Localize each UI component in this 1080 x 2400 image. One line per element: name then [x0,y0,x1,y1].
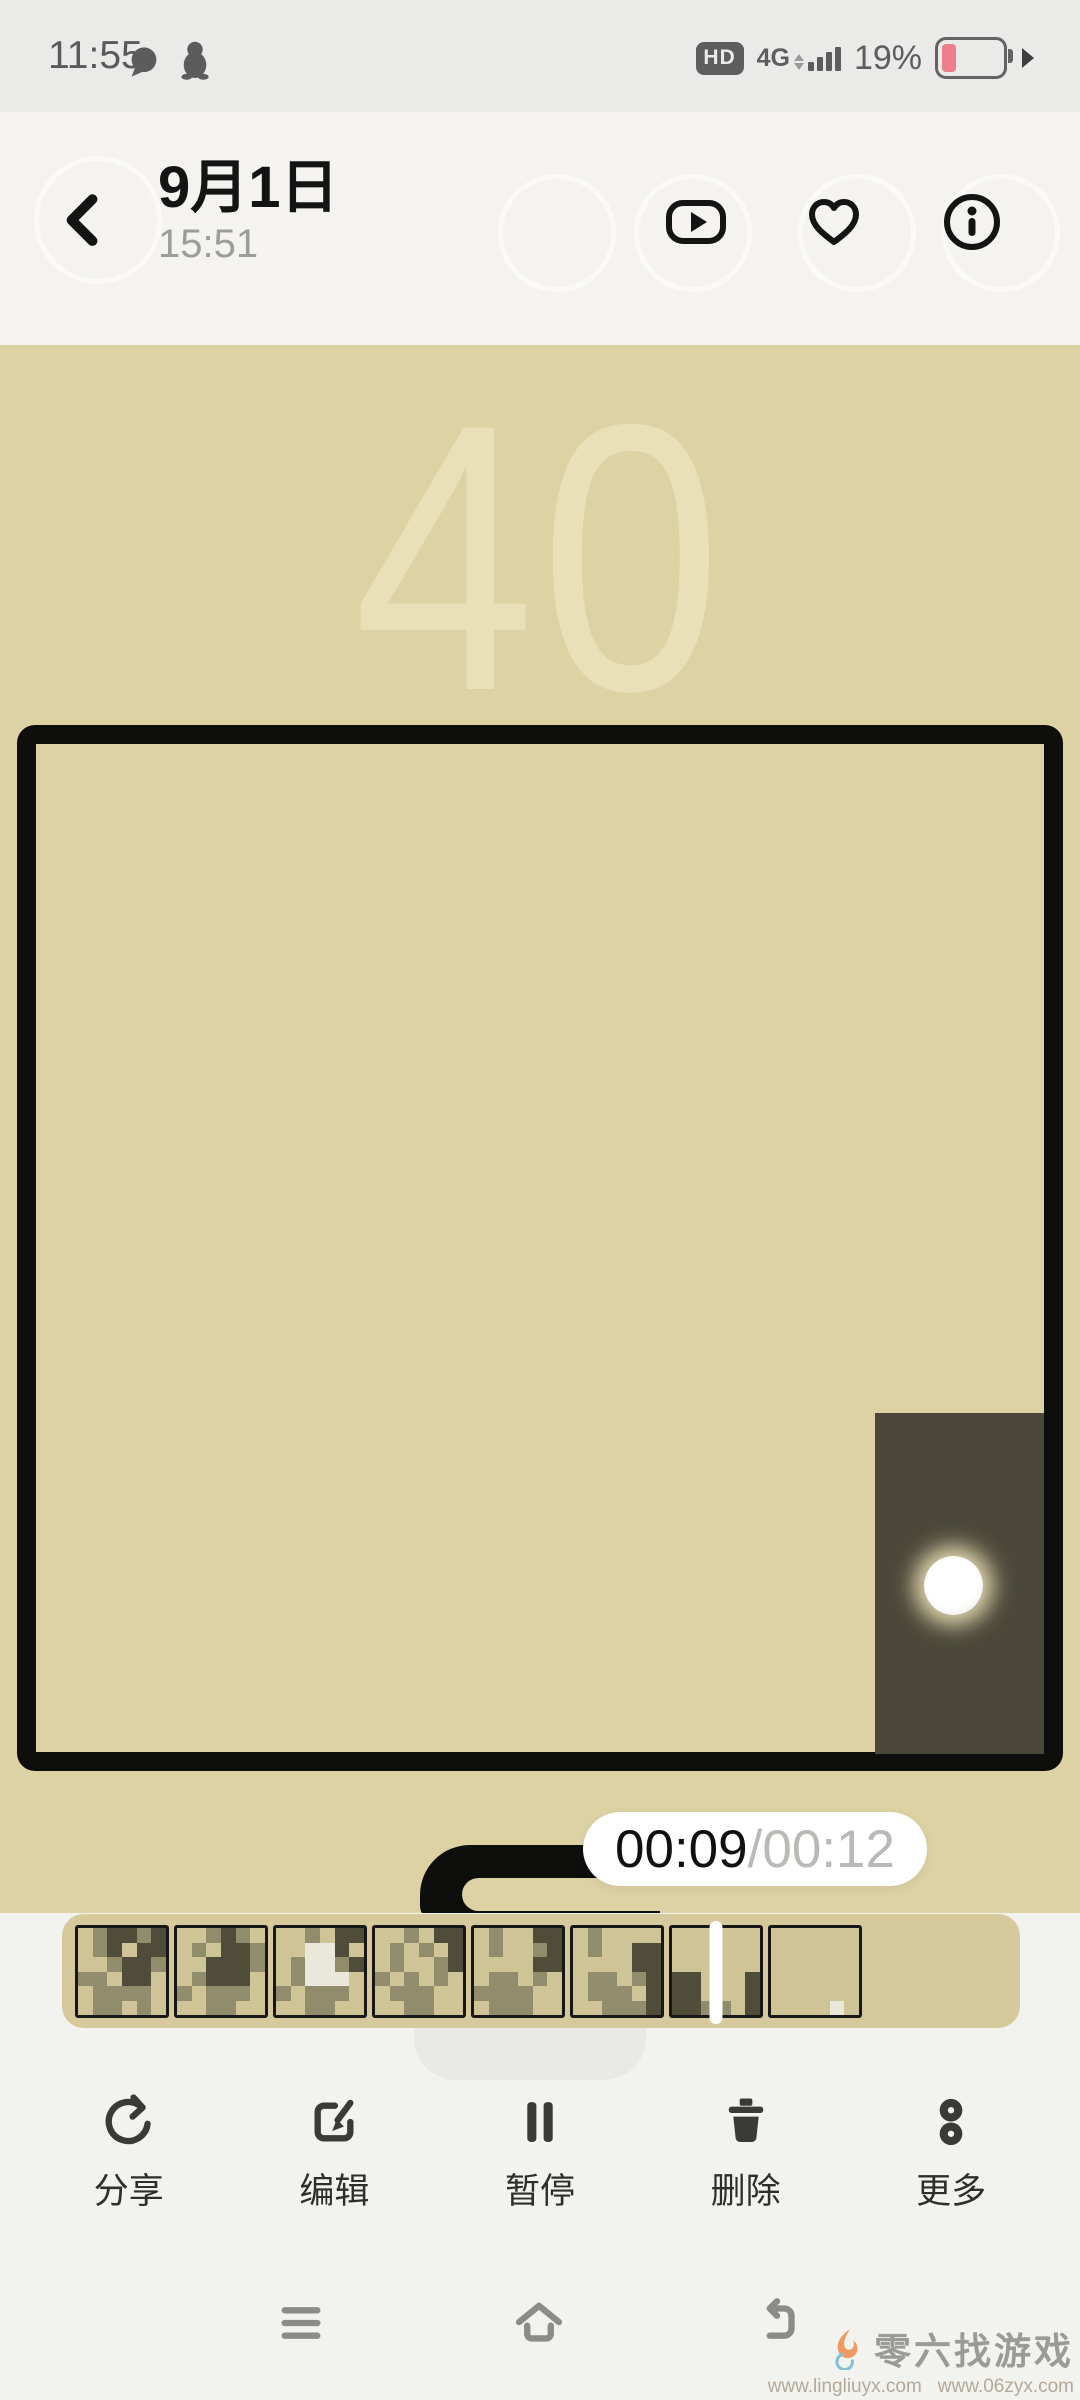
total-time: 00:12 [762,1819,895,1880]
battery-tip [1008,49,1013,63]
battery-icon [935,37,1007,79]
back-button[interactable] [58,192,116,250]
watermark: 零六找游戏 www.lingliuyx.com www.06zyx.com [768,2321,1074,2398]
game-ball [924,1556,983,1615]
play-preview-button[interactable] [664,190,728,254]
network-type: 4G [757,46,790,71]
toolbar-item-delete[interactable]: 删除 [711,2085,781,2247]
toolbar-label: 分享 [94,2163,164,2214]
delete-icon [717,2093,775,2151]
toolbar-label: 暂停 [505,2163,575,2214]
pause-icon [511,2093,569,2151]
thumb-mosaic [771,1928,859,2015]
thumb-mosaic [78,1928,166,2015]
nav-home-button[interactable] [510,2294,568,2352]
filmstrip-thumb-8[interactable] [768,1925,862,2018]
watermark-name: 零六找游戏 [874,2321,1074,2375]
page-title: 9月1日 [158,156,339,220]
data-arrows-icon [794,54,804,70]
bottom-panel: 分享编辑暂停删除更多 零六找游戏 www.lingliuyx.com www.0… [0,1913,1080,2400]
watermark-url-1: www.lingliuyx.com [768,2376,922,2398]
more-icon [922,2093,980,2151]
filmstrip-thumb-6[interactable] [570,1925,664,2018]
video-frame[interactable]: 40 00:09 / 00:12 [0,345,1080,1913]
share-icon [100,2093,158,2151]
hd-badge: HD [696,42,744,75]
edit-icon [305,2093,363,2151]
toolbar-item-more[interactable]: 更多 [916,2085,986,2247]
toolbar-item-pause[interactable]: 暂停 [505,2085,575,2247]
filmstrip[interactable] [62,1914,1020,2028]
filmstrip-thumbnails [75,1925,862,2018]
playback-time-pill: 00:09 / 00:12 [583,1812,927,1886]
watermark-flame-icon [824,2326,868,2370]
ghost-circle [498,174,616,292]
current-time: 00:09 [615,1819,748,1880]
signal-indicator: 4G [757,46,841,71]
toolbar: 分享编辑暂停删除更多 [0,2085,1080,2247]
toolbar-label: 编辑 [299,2163,369,2214]
thumb-mosaic [276,1928,364,2015]
message-icon [126,44,162,80]
status-right-cluster: HD 4G 19% [696,36,1034,80]
toolbar-label: 删除 [711,2163,781,2214]
thumb-mosaic [375,1928,463,2015]
battery-percent: 19% [854,39,922,78]
toolbar-item-share[interactable]: 分享 [94,2085,164,2247]
signal-bars-icon [808,47,841,71]
filmstrip-thumb-5[interactable] [471,1925,565,2018]
toolbar-label: 更多 [916,2163,986,2214]
phone-screen: 11:55 HD 4G 19% [0,0,1080,2400]
menu-icon [272,2339,330,2356]
filmstrip-thumb-4[interactable] [372,1925,466,2018]
home-icon [510,2339,568,2356]
qq-penguin-icon [176,40,214,80]
watermark-url-2: www.06zyx.com [938,2376,1074,2398]
page-subtitle: 15:51 [158,220,339,268]
thumb-mosaic [474,1928,562,2015]
info-button[interactable] [940,190,1004,254]
filmstrip-thumb-7[interactable] [669,1925,763,2018]
navigation-bar [272,2283,806,2363]
toolbar-item-edit[interactable]: 编辑 [299,2085,369,2247]
game-score: 40 [76,368,1005,748]
title-block: 9月1日 15:51 [158,156,339,268]
time-separator: / [748,1819,763,1880]
header: 9月1日 15:51 [0,112,1080,345]
thumb-mosaic [573,1928,661,2015]
battery-pointer-icon [1022,48,1034,68]
filmstrip-thumb-2[interactable] [174,1925,268,2018]
thumb-mosaic [177,1928,265,2015]
filmstrip-thumb-1[interactable] [75,1925,169,2018]
favorite-button[interactable] [802,190,866,254]
status-bar: 11:55 HD 4G 19% [0,0,1080,112]
nav-menu-button[interactable] [272,2294,330,2352]
filmstrip-thumb-3[interactable] [273,1925,367,2018]
playhead[interactable] [710,1921,723,2024]
battery-fill [942,44,956,72]
